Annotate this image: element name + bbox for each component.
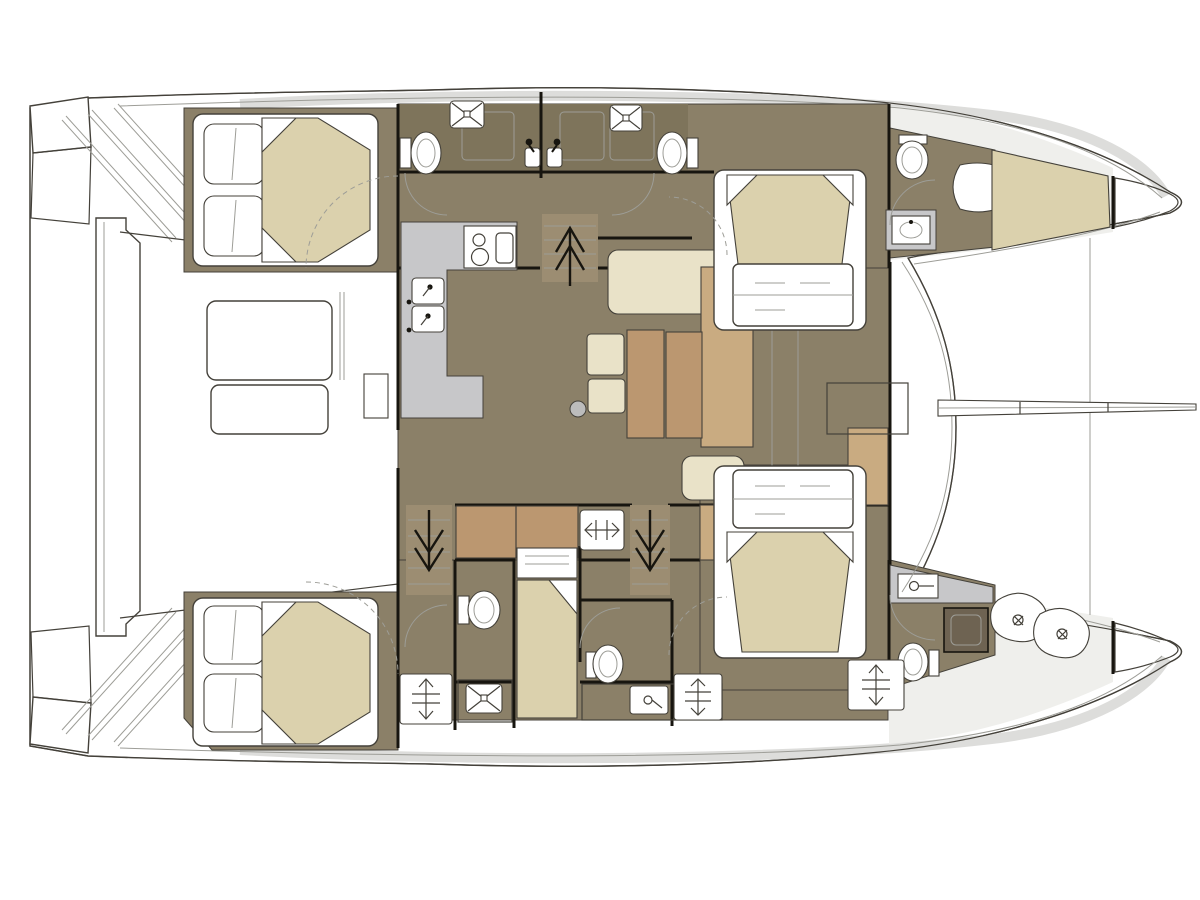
stove: [464, 226, 516, 268]
berth-counter: [517, 548, 577, 578]
galley-hatch-icon: [580, 510, 624, 550]
catamaran-floor-plan: [0, 0, 1200, 900]
deck-hatch-icon: [674, 674, 722, 720]
cockpit-console: [364, 374, 388, 418]
cockpit-table: [207, 301, 332, 380]
toilet-icon: [400, 132, 441, 174]
port-transom: [30, 97, 91, 153]
companionway-stairs-up: [542, 214, 598, 286]
deck-hatch-icon: [848, 660, 904, 710]
deck-hatch-icon: [400, 674, 452, 724]
stbd-aft-cabin-bed: [193, 598, 378, 746]
dinette-seat: [587, 334, 624, 375]
stbd-transom: [30, 697, 91, 753]
toilet-cistern: [458, 596, 469, 624]
tender-platform: [96, 218, 140, 636]
stairs-down-starboard-side: [630, 505, 670, 595]
port-fwd-cabin-bed: [714, 170, 866, 330]
dinette-table-left: [627, 330, 664, 438]
mattress: [727, 532, 853, 652]
floor-plan-page: [0, 0, 1200, 900]
shower-tray-icon: [450, 101, 484, 128]
bowsprit: [938, 400, 1196, 416]
toilet-icon: [657, 132, 698, 174]
cockpit-bench: [211, 385, 328, 434]
dinette-seat: [588, 379, 625, 413]
toilet-cistern: [929, 650, 939, 676]
port-aft-cabin-bed: [193, 114, 378, 266]
washbasin-icon: [630, 686, 668, 714]
table-leg: [570, 401, 586, 417]
mattress: [727, 175, 853, 264]
shower-tray-icon: [466, 684, 502, 713]
stairs-down-port-side: [406, 505, 452, 595]
shower-tray-icon: [610, 105, 642, 131]
dinette-table-right: [666, 332, 702, 438]
stbd-fwd-cabin-bed: [714, 466, 866, 658]
mattress: [262, 118, 370, 262]
skipper-berth: [517, 548, 577, 718]
